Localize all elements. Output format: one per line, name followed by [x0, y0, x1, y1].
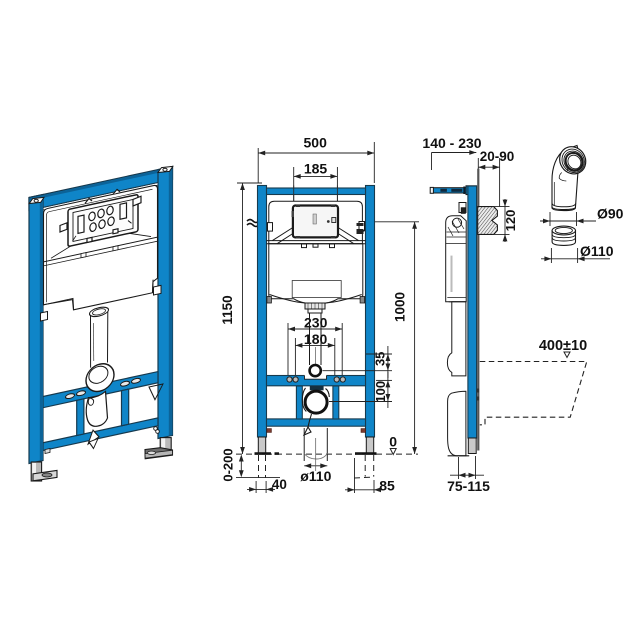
svg-text:75-115: 75-115	[447, 478, 490, 494]
svg-text:85: 85	[379, 477, 395, 493]
svg-text:120: 120	[503, 210, 518, 232]
svg-text:Ø110: Ø110	[580, 243, 614, 259]
svg-text:40: 40	[272, 477, 287, 492]
svg-text:0: 0	[389, 434, 397, 450]
svg-text:1150: 1150	[220, 295, 235, 324]
svg-text:140 - 230: 140 - 230	[422, 135, 481, 151]
svg-text:20-90: 20-90	[480, 149, 515, 164]
svg-text:230: 230	[304, 315, 328, 331]
svg-text:ø110: ø110	[300, 468, 331, 484]
svg-text:400±10: 400±10	[539, 338, 587, 354]
svg-text:180: 180	[304, 331, 328, 347]
svg-text:185: 185	[304, 161, 328, 177]
svg-text:1000: 1000	[393, 292, 408, 322]
svg-text:500: 500	[304, 134, 328, 150]
svg-text:100: 100	[373, 381, 388, 403]
svg-text:0-200: 0-200	[220, 448, 235, 481]
svg-text:Ø90: Ø90	[597, 206, 624, 222]
